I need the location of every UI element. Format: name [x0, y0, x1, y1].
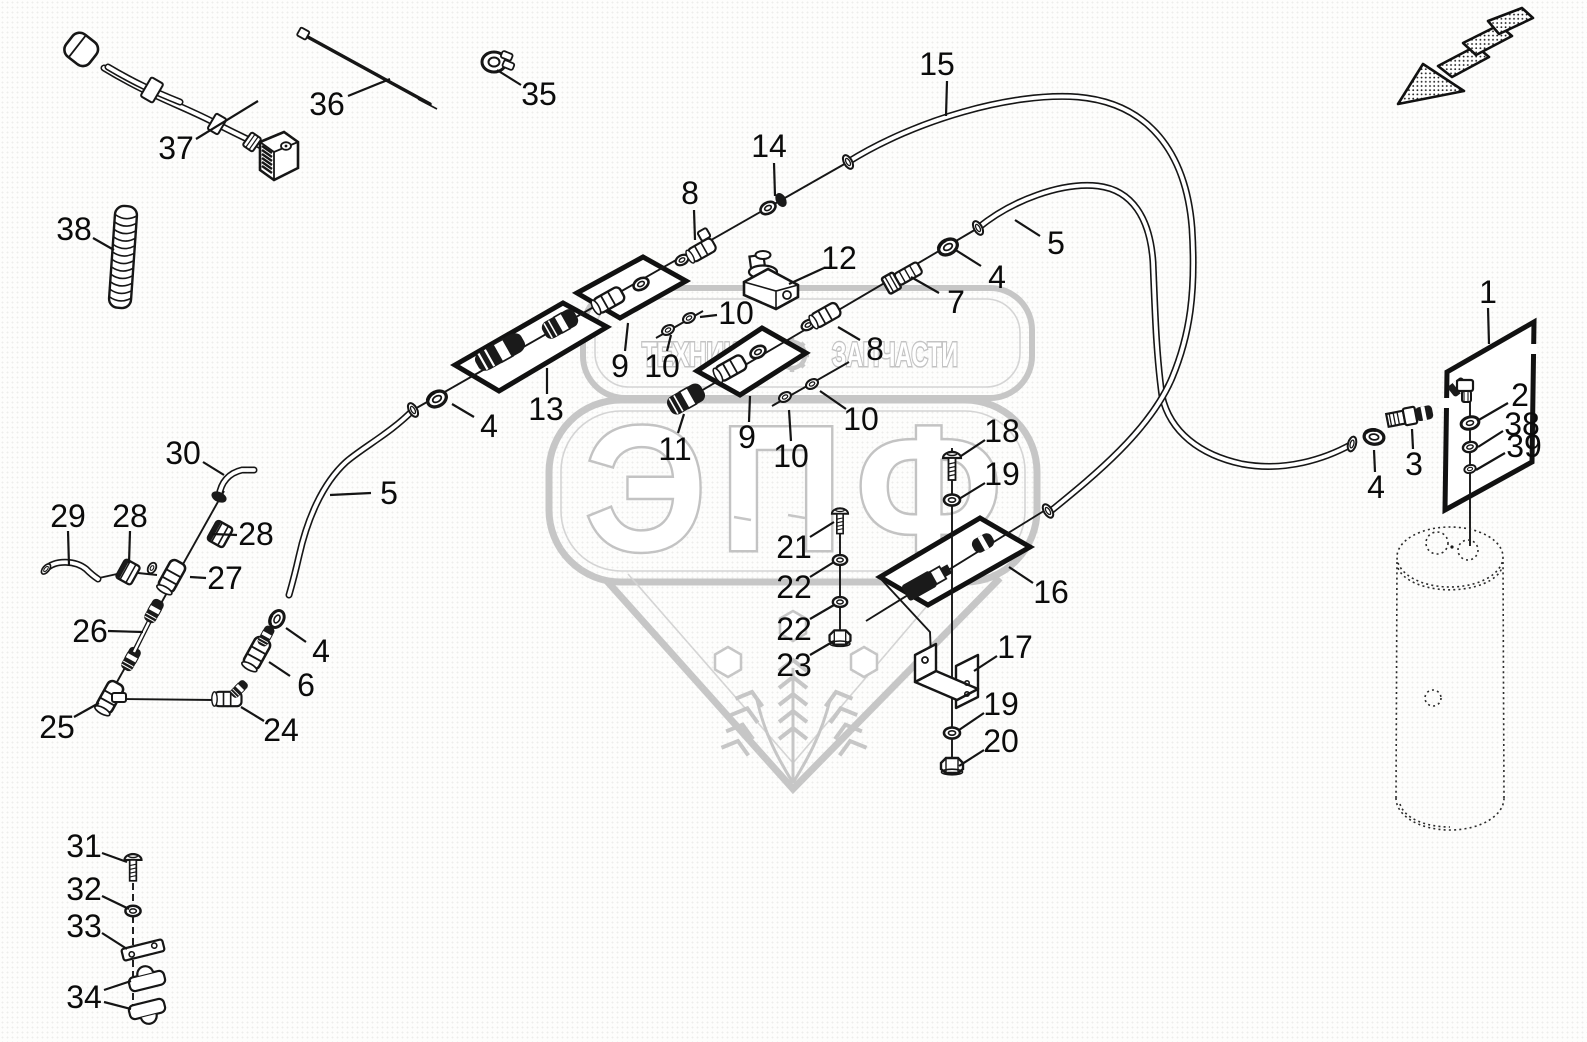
callout-31: 31	[66, 828, 102, 864]
callout-4-leader	[452, 404, 474, 417]
callout-14: 14	[751, 128, 787, 164]
callout-15: 15	[919, 46, 955, 82]
callout-38: 38	[56, 211, 92, 247]
callout-8-leader	[694, 210, 695, 240]
callout-28: 28	[238, 516, 274, 552]
callout-23: 23	[776, 647, 812, 683]
callout-17: 17	[997, 629, 1033, 665]
callout-5: 5	[1047, 225, 1065, 261]
callout-22: 22	[776, 569, 812, 605]
diagram-canvas: ЭПФ ТЕХНИКА ЗАПЧАСТИ	[0, 0, 1587, 1042]
callout-1: 1	[1479, 274, 1497, 310]
part-38-corrugated-tube	[108, 205, 137, 308]
callout-33-leader	[102, 933, 127, 949]
callout-38-leader	[93, 238, 114, 250]
callout-16: 16	[1033, 574, 1069, 610]
callout-23-leader	[810, 641, 834, 655]
callout-26-leader	[108, 631, 143, 632]
callout-27-leader	[190, 577, 206, 578]
callout-26: 26	[72, 613, 108, 649]
stack-31-34	[121, 854, 168, 1028]
callout-5-leader	[330, 493, 371, 495]
callout-11: 11	[658, 431, 691, 467]
callout-22: 22	[776, 611, 812, 647]
callout-15-leader	[946, 81, 947, 116]
callout-19-leader	[959, 713, 984, 730]
callout-9: 9	[611, 348, 629, 384]
part-35-clamp	[482, 51, 518, 72]
callout-34-leader	[104, 981, 131, 990]
callout-10: 10	[843, 401, 879, 437]
parts-diagram: ЭПФ ТЕХНИКА ЗАПЧАСТИ	[0, 0, 1587, 1042]
callout-27: 27	[207, 560, 243, 596]
callout-20-leader	[959, 750, 984, 766]
callout-4-leader	[286, 628, 306, 642]
callout-8: 8	[866, 331, 884, 367]
callout-19: 19	[984, 456, 1020, 492]
callout-1-leader	[1488, 308, 1489, 344]
part-3-fitting	[1386, 403, 1434, 428]
callout-layer: 3736353815148547128101091345119101030292…	[39, 46, 1542, 1015]
callout-7: 7	[947, 284, 965, 320]
callout-30: 30	[165, 435, 201, 471]
callout-28-leader	[129, 531, 130, 563]
callout-35-leader	[497, 70, 521, 85]
callout-5-leader	[1015, 220, 1040, 236]
direction-arrow-icon	[1398, 8, 1533, 104]
cable-coil-block	[260, 132, 298, 180]
callout-28: 28	[112, 498, 148, 534]
callout-9: 9	[738, 419, 756, 455]
callout-37: 37	[158, 130, 194, 166]
callout-32-leader	[102, 896, 129, 909]
callout-3: 3	[1405, 446, 1423, 482]
callout-9-leader	[625, 323, 628, 351]
canister	[1396, 527, 1504, 830]
callout-32: 32	[66, 871, 102, 907]
callout-10: 10	[718, 295, 754, 331]
callout-28-leader	[212, 534, 237, 535]
callout-4: 4	[312, 633, 330, 669]
callout-34: 34	[66, 979, 102, 1015]
callout-35: 35	[521, 76, 557, 112]
callout-33: 33	[66, 908, 102, 944]
callout-13: 13	[528, 391, 564, 427]
callout-4: 4	[988, 259, 1006, 295]
callout-24-leader	[241, 707, 264, 721]
callout-6-leader	[269, 662, 290, 676]
callout-39: 39	[1506, 428, 1542, 464]
callout-20: 20	[983, 723, 1019, 759]
callout-4: 4	[480, 408, 498, 444]
callout-22-leader	[810, 605, 834, 619]
callout-14-leader	[774, 163, 775, 196]
callout-5: 5	[380, 475, 398, 511]
callout-4-leader	[954, 249, 981, 266]
callout-30-leader	[203, 462, 224, 475]
part-17-bracket	[915, 644, 978, 708]
callout-10-leader	[700, 315, 717, 317]
callout-34-leader	[104, 1002, 131, 1009]
callout-21: 21	[776, 529, 812, 565]
callout-19: 19	[983, 686, 1019, 722]
callout-29-leader	[68, 531, 69, 566]
callout-25: 25	[39, 709, 75, 745]
callout-12: 12	[821, 240, 857, 276]
part-6-fitting	[240, 625, 275, 674]
callout-6: 6	[297, 667, 315, 703]
callout-29: 29	[50, 498, 86, 534]
callout-4: 4	[1367, 469, 1385, 505]
callout-10: 10	[644, 348, 680, 384]
callout-36: 36	[309, 86, 345, 122]
callout-36-leader	[348, 79, 390, 96]
callout-18: 18	[984, 413, 1020, 449]
callout-24: 24	[263, 712, 299, 748]
callout-8: 8	[681, 175, 699, 211]
callout-10: 10	[773, 438, 809, 474]
part-24-elbow	[212, 679, 249, 706]
watermark-banner-right: ЗАПЧАСТИ	[832, 336, 958, 374]
callout-31-leader	[102, 853, 127, 862]
callout-12-leader	[789, 268, 824, 284]
